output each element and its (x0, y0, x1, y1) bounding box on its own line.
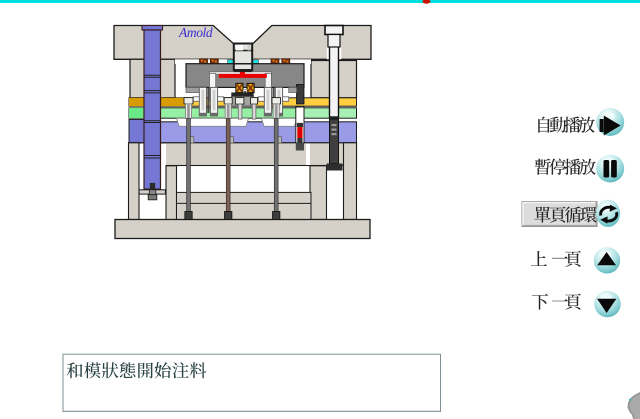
svg-text:Amold: Amold (178, 25, 213, 40)
